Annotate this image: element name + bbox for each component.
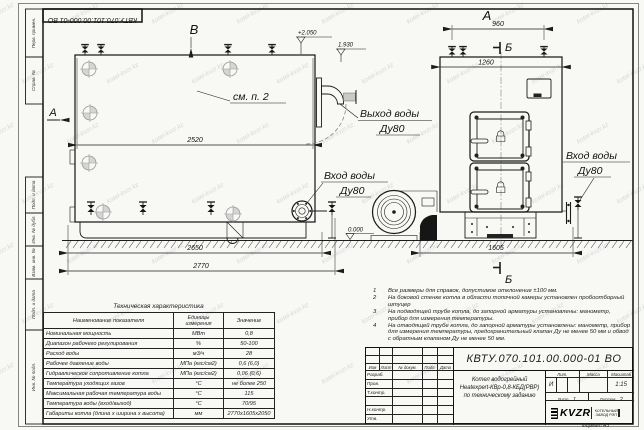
strip-label: Взам. инв. № xyxy=(31,248,36,276)
svg-text:2770: 2770 xyxy=(192,263,209,270)
tech-table-title: Техническая характеристика xyxy=(43,301,274,312)
table-row: Номинальная мощностьМВт0,8 xyxy=(44,329,275,339)
elevation-mark-zero: 0.000 xyxy=(346,228,374,240)
col-units: Единицы измерения xyxy=(174,313,224,329)
lit-label: Лит. xyxy=(546,371,580,377)
water-outlet-label: Выход воды Ду80 xyxy=(340,104,432,135)
strip-label: Инв. № дубл. xyxy=(31,215,36,243)
valve-icon xyxy=(268,45,276,55)
doc-number: КВТУ.070.101.00.000-01 ВО xyxy=(453,348,634,371)
col-value: Значение xyxy=(224,313,275,329)
view-a-arrow-label: А xyxy=(48,107,56,119)
position-mark-icon xyxy=(94,203,112,221)
scale-label: Масштаб xyxy=(608,371,634,377)
svg-text:Б: Б xyxy=(505,42,512,54)
door-handle xyxy=(471,190,488,194)
svg-text:Б: Б xyxy=(505,274,512,286)
drain-valve-icon xyxy=(139,202,147,215)
drawing-sheet: kotel-kvzr.kzkotel-kvzr.kzkotel-kvzr.kzk… xyxy=(0,0,644,430)
table-row: Максимальная рабочая температура воды°С1… xyxy=(44,389,275,399)
kvzr-logo-text: KVZR xyxy=(560,407,592,419)
sign-row: Пров. xyxy=(366,380,453,389)
sign-row: Т.контр. xyxy=(366,389,453,398)
company-name: КОТЕЛЬНЫЙ ЗАВОД РЭП xyxy=(595,409,620,418)
view-a-label: А xyxy=(482,8,492,23)
svg-text:2650: 2650 xyxy=(186,245,203,252)
svg-text:Ду80: Ду80 xyxy=(577,165,603,177)
padlock-icon xyxy=(497,131,505,142)
drain-valve-icon xyxy=(207,202,215,215)
padlock-icon xyxy=(497,182,505,193)
kvzr-logo-icon xyxy=(551,408,558,419)
svg-text:Вход воды: Вход воды xyxy=(566,150,617,162)
svg-text:1260: 1260 xyxy=(478,60,494,67)
position-mark-icon xyxy=(81,104,99,122)
col-name: Наименование показателя xyxy=(44,313,174,329)
sign-row xyxy=(366,397,453,406)
format-label: Формат А3 xyxy=(558,423,633,429)
tech-table: Наименование показателя Единицы измерени… xyxy=(43,312,275,419)
water-inlet-label-side: Вход воды Ду80 xyxy=(307,170,388,203)
lower-door xyxy=(470,163,531,212)
water-inlet-flange-side xyxy=(292,201,336,238)
sign-row: Разраб. xyxy=(366,371,453,380)
table-row: Габариты котла (длина х ширина х высота)… xyxy=(44,409,275,419)
svg-text:2520: 2520 xyxy=(186,137,203,144)
section-b-top: Б xyxy=(493,42,512,54)
strip-label: Перв. примен. xyxy=(31,18,36,49)
valve-icon xyxy=(328,202,336,215)
position-mark-icon xyxy=(80,60,98,78)
water-inlet-flange-front xyxy=(562,197,582,238)
table-row: Рабочее давление водыМПа (кгс/см2)0,6 (6… xyxy=(44,359,275,369)
fan-blower xyxy=(371,191,437,241)
revision-grid: Изм Лист № докум. Подп. Дата Разраб. Про… xyxy=(366,348,453,423)
company-cell: KVZR КОТЕЛЬНЫЙ ЗАВОД РЭП xyxy=(546,401,634,425)
valve-icon xyxy=(459,47,467,57)
strip-label: Справ. № xyxy=(31,70,36,91)
see-item-callout: см. п. 2 xyxy=(197,91,286,103)
revision-header-row: Изм Лист № докум. Подп. Дата xyxy=(366,364,453,371)
door-handle xyxy=(471,139,488,143)
tech-characteristics: Техническая характеристика Наименование … xyxy=(43,301,274,419)
svg-text:960: 960 xyxy=(492,21,504,28)
water-inlet-label-front: Вход воды Ду80 xyxy=(563,150,630,200)
svg-text:0.000: 0.000 xyxy=(348,228,364,234)
svg-text:Выход воды: Выход воды xyxy=(360,108,419,120)
svg-text:Ду80: Ду80 xyxy=(339,185,365,197)
scale-value: 1:15 xyxy=(608,378,634,392)
section-b-bottom: Б xyxy=(493,262,512,286)
table-row: Температура воды (вход/выход)°С70/95 xyxy=(44,399,275,409)
note-item: 3На подводящей трубе котла, до запорной … xyxy=(371,309,631,323)
lit-value: И xyxy=(546,378,557,392)
upper-door xyxy=(470,112,531,161)
sign-row: Н.контр. xyxy=(366,406,453,415)
valve-icon xyxy=(97,45,105,55)
mass-label: Масса xyxy=(580,371,609,377)
elevation-mark-pipe: 1.930 xyxy=(336,43,366,63)
title-block: КВТУ.070.101.00.000-01 ВО Изм Лист № док… xyxy=(365,347,633,424)
elevation-mark-top: +2.050 xyxy=(296,31,332,55)
valve-icon xyxy=(224,45,232,55)
ground-line xyxy=(62,241,633,249)
item-name: Котел водогрейный Heatexpert-КВр-0,8-КБД… xyxy=(453,371,545,425)
table-row: Диапазон рабочего регулирования%50-100 xyxy=(44,339,275,349)
sheet-number: Лист 1 xyxy=(546,393,589,400)
note-item: 2На боковой стенке котла в области топоч… xyxy=(371,295,631,309)
svg-text:1605: 1605 xyxy=(488,245,504,252)
boiler-side-view: В А +2.050 1.930 см. п. 2 xyxy=(47,22,432,275)
valve-icon xyxy=(448,47,456,57)
valve-icon xyxy=(81,45,89,55)
svg-text:см. п. 2: см. п. 2 xyxy=(233,91,269,103)
svg-text:+2.050: +2.050 xyxy=(298,31,317,37)
table-row: Температура уходящих газов°Сне более 250 xyxy=(44,379,275,389)
svg-text:Вход воды: Вход воды xyxy=(324,170,375,182)
svg-text:Ду80: Ду80 xyxy=(379,123,405,135)
notes: 1Все размеры для справок, допустимое отк… xyxy=(371,288,631,343)
note-item: 4На отводящей трубе котла, до запорной а… xyxy=(371,323,631,344)
svg-text:1.930: 1.930 xyxy=(338,43,354,49)
control-box xyxy=(527,79,551,98)
dim-1605: 1605 xyxy=(420,227,573,257)
dim-2520: 2520 xyxy=(77,58,313,149)
valve-icon xyxy=(540,47,548,57)
dim-960: 960 xyxy=(452,21,544,40)
tech-header-row: Наименование показателя Единицы измерени… xyxy=(44,313,275,329)
strip-label: Подп. и дата xyxy=(31,180,36,209)
position-mark-icon xyxy=(224,205,242,223)
drain-valve-icon xyxy=(87,202,95,215)
table-row: Расход водым3/ч28 xyxy=(44,349,275,359)
title-block-right: Лит. Масса Масштаб И 1:15 Лист 1 Листов … xyxy=(545,371,634,425)
position-mark-icon xyxy=(80,154,98,172)
boiler-front-view: 960 А Б 1260 xyxy=(346,8,630,286)
pedestal xyxy=(465,212,536,238)
note-item: 1Все размеры для справок, допустимое отк… xyxy=(371,288,631,295)
sheets-total: Листов 2 xyxy=(589,393,634,400)
position-mark-icon xyxy=(221,60,239,78)
water-outlet-pipe xyxy=(306,78,356,144)
strip-label: Инв. № подл. xyxy=(31,363,36,392)
sign-row: Утв. xyxy=(366,415,453,424)
top-stamp-doc-number: КВТУ.070.101.00.000-01 ВО xyxy=(47,16,137,23)
table-row: Гидравлическое сопротивление котлаМПа (к… xyxy=(44,369,275,379)
view-v-label: В xyxy=(190,22,199,37)
strip-label: Подп. и дата xyxy=(31,290,36,319)
